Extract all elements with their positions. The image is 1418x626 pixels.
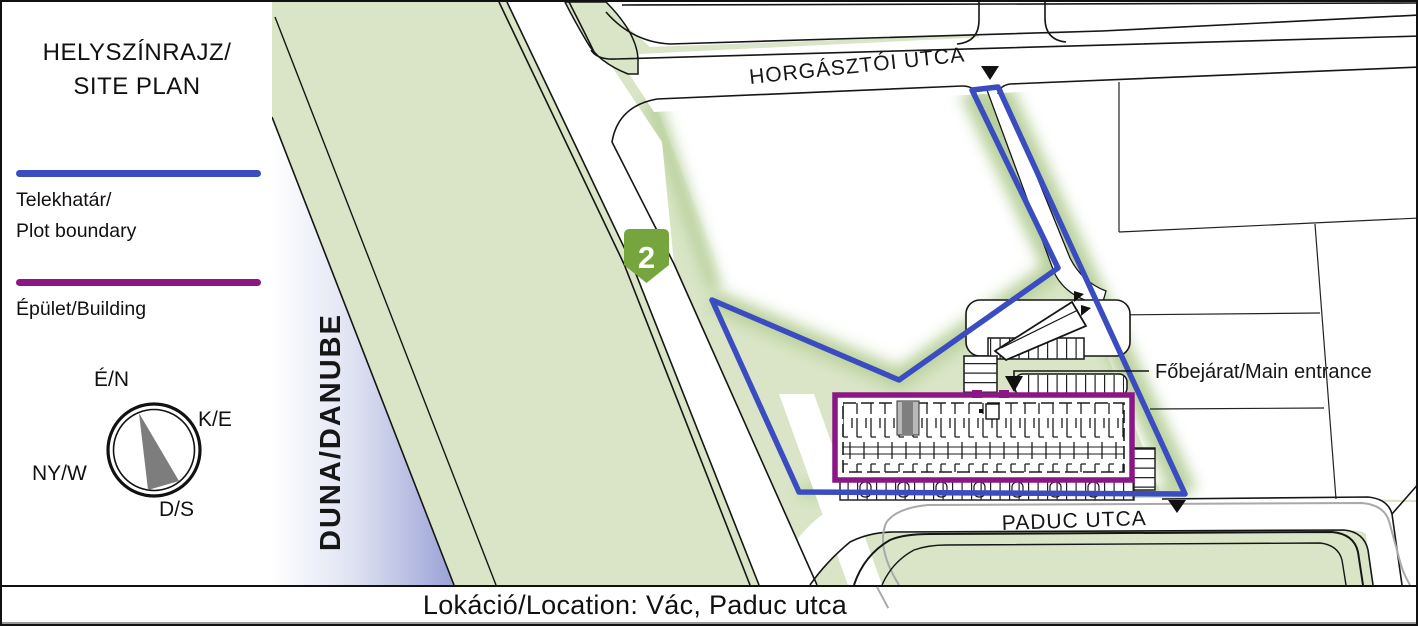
location-bar: Lokáció/Location: Vác, Paduc utca — [2, 585, 1416, 624]
compass-south-label: D/S — [159, 498, 194, 522]
entrance-label: Főbejárat/Main entrance — [1155, 361, 1372, 383]
parking-column-east — [1133, 448, 1155, 490]
location-label: Lokáció/Location: Vác, Paduc utca — [0, 587, 1342, 624]
site-plan-map: Főbejárat/Main entrance 2 HORGÁSZTÓI UTC… — [272, 2, 1418, 585]
river-label: DUNA/DANUBE — [315, 313, 347, 551]
compass-north-label: É/N — [94, 368, 129, 392]
elevator-symbol — [986, 404, 999, 419]
legend-panel: HELYSZÍNRAJZ/ SITE PLAN Telekhatár/ Plot… — [2, 2, 274, 585]
building-floorplan-walls — [843, 403, 1124, 472]
stair-core-dark — [902, 401, 913, 435]
entrance-tab-left — [972, 390, 982, 398]
compass-rose — [2, 2, 272, 585]
route-badge-number: 2 — [638, 240, 655, 275]
site-plan-drawing: Főbejárat/Main entrance 2 HORGÁSZTÓI UTC… — [272, 2, 1418, 585]
building-footprint — [835, 390, 1132, 480]
compass-east-label: K/E — [198, 408, 232, 432]
elevator-dot — [979, 409, 983, 413]
entrance-tab-right — [999, 390, 1009, 398]
site-plan-sheet: HELYSZÍNRAJZ/ SITE PLAN Telekhatár/ Plot… — [0, 0, 1418, 626]
compass-west-label: NY/W — [32, 462, 87, 486]
stub-road — [979, 2, 1045, 46]
